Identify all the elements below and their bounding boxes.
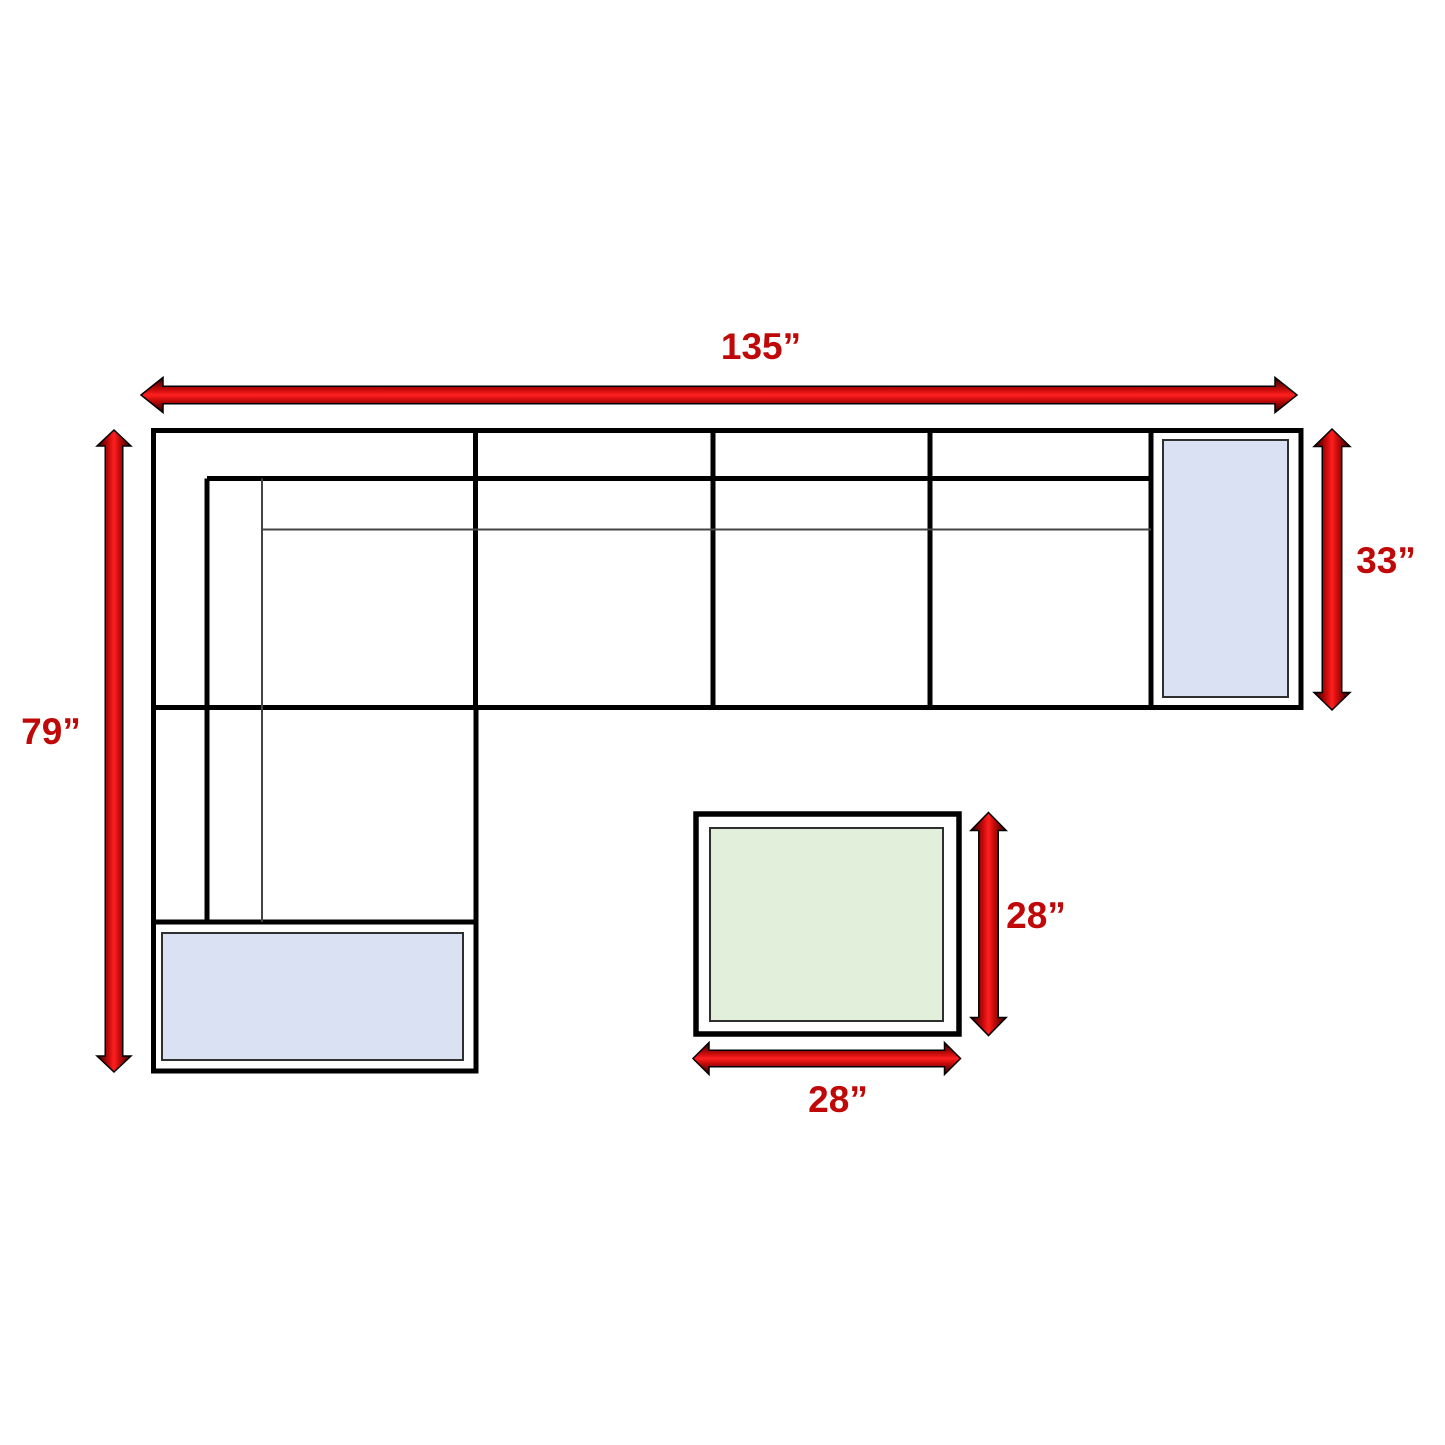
svg-text:79”: 79” (21, 711, 81, 752)
svg-text:135”: 135” (721, 326, 801, 367)
svg-text:28”: 28” (1006, 895, 1066, 936)
svg-text:33”: 33” (1356, 540, 1416, 581)
svg-text:28”: 28” (808, 1079, 868, 1120)
